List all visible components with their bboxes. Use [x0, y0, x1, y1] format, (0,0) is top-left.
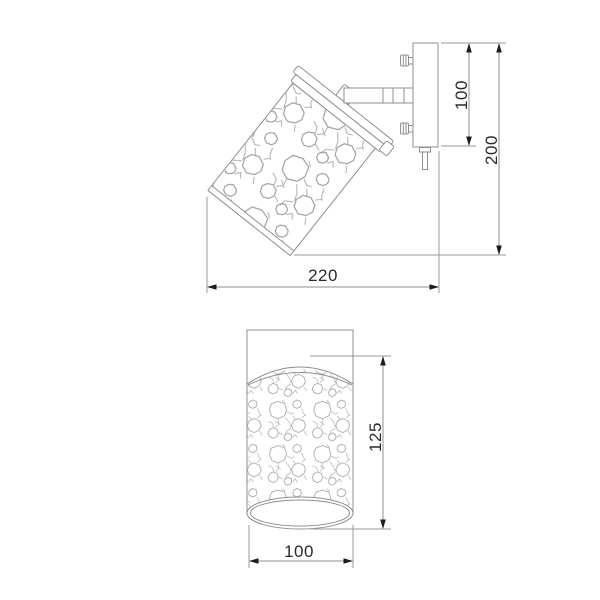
dim-arrow-up — [496, 43, 502, 53]
wall-plate — [413, 43, 438, 147]
shade-pattern — [247, 354, 353, 514]
dim-arrow-up — [466, 43, 472, 53]
dim-label-shade-diameter: 100 — [284, 542, 314, 561]
dim-shade-diameter: 100 — [249, 525, 353, 568]
dim-label-plate-height: 100 — [452, 80, 471, 110]
lamp-dimension-drawing: 100 200 220 — [0, 0, 600, 600]
front-view: 125 100 — [247, 330, 391, 568]
dim-label-total-width: 220 — [308, 266, 338, 285]
pull-switch — [420, 148, 431, 170]
shade-front — [247, 330, 353, 529]
dim-arrow-right — [344, 558, 354, 564]
mounting-screw-bottom — [401, 123, 414, 134]
dim-arrow-down — [380, 520, 386, 530]
dim-arrow-up — [380, 356, 386, 366]
dim-arrow-left — [207, 284, 217, 290]
dim-plate-height: 100 — [441, 43, 506, 146]
dim-arrow-right — [430, 284, 440, 290]
shade-bottom-opening — [247, 497, 353, 529]
dim-label-shade-height: 125 — [366, 422, 385, 452]
arm — [344, 88, 413, 103]
side-view: 100 200 220 — [202, 43, 506, 293]
dim-arrow-down — [466, 137, 472, 147]
shade-side — [202, 54, 405, 264]
dim-arrow-left — [249, 558, 259, 564]
mounting-screw-top — [401, 55, 414, 66]
dim-label-total-height: 200 — [482, 135, 501, 165]
dim-arrow-down — [496, 246, 502, 256]
